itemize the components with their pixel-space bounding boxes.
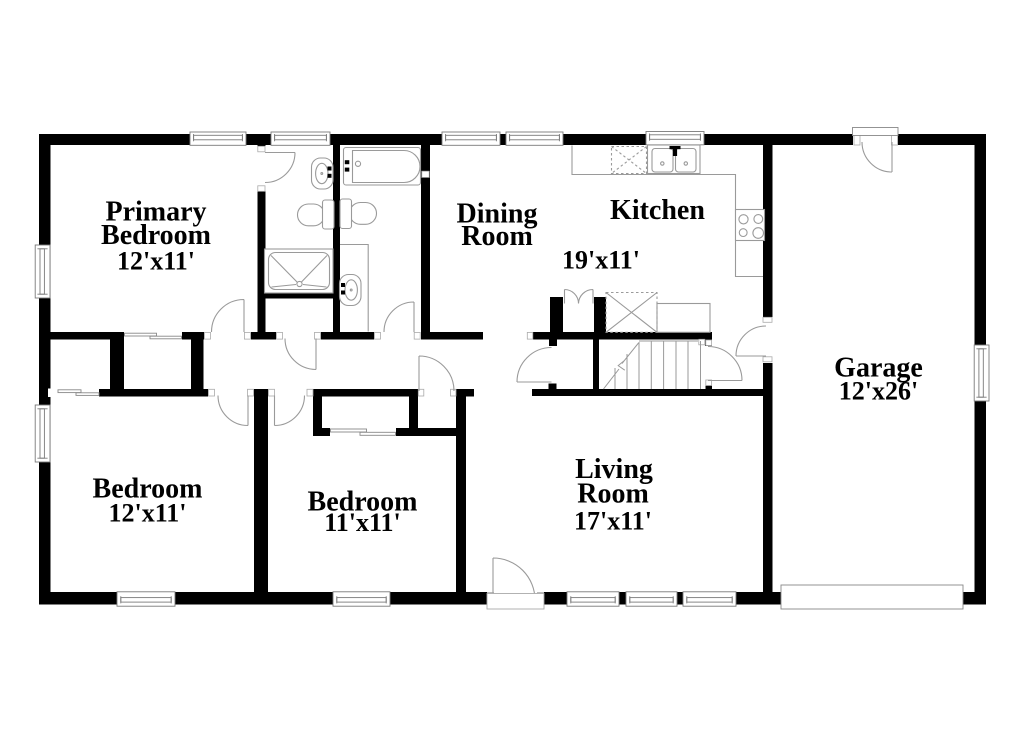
svg-text:19'x11': 19'x11' bbox=[562, 245, 640, 274]
svg-text:12'x11': 12'x11' bbox=[117, 247, 195, 276]
svg-text:Kitchen: Kitchen bbox=[610, 195, 705, 226]
svg-text:12'x26': 12'x26' bbox=[839, 377, 918, 406]
svg-text:12'x11': 12'x11' bbox=[108, 498, 186, 527]
svg-text:11'x11': 11'x11' bbox=[324, 508, 401, 537]
svg-text:17'x11': 17'x11' bbox=[574, 507, 652, 536]
svg-text:Room: Room bbox=[577, 479, 649, 510]
svg-text:Room: Room bbox=[461, 221, 533, 252]
